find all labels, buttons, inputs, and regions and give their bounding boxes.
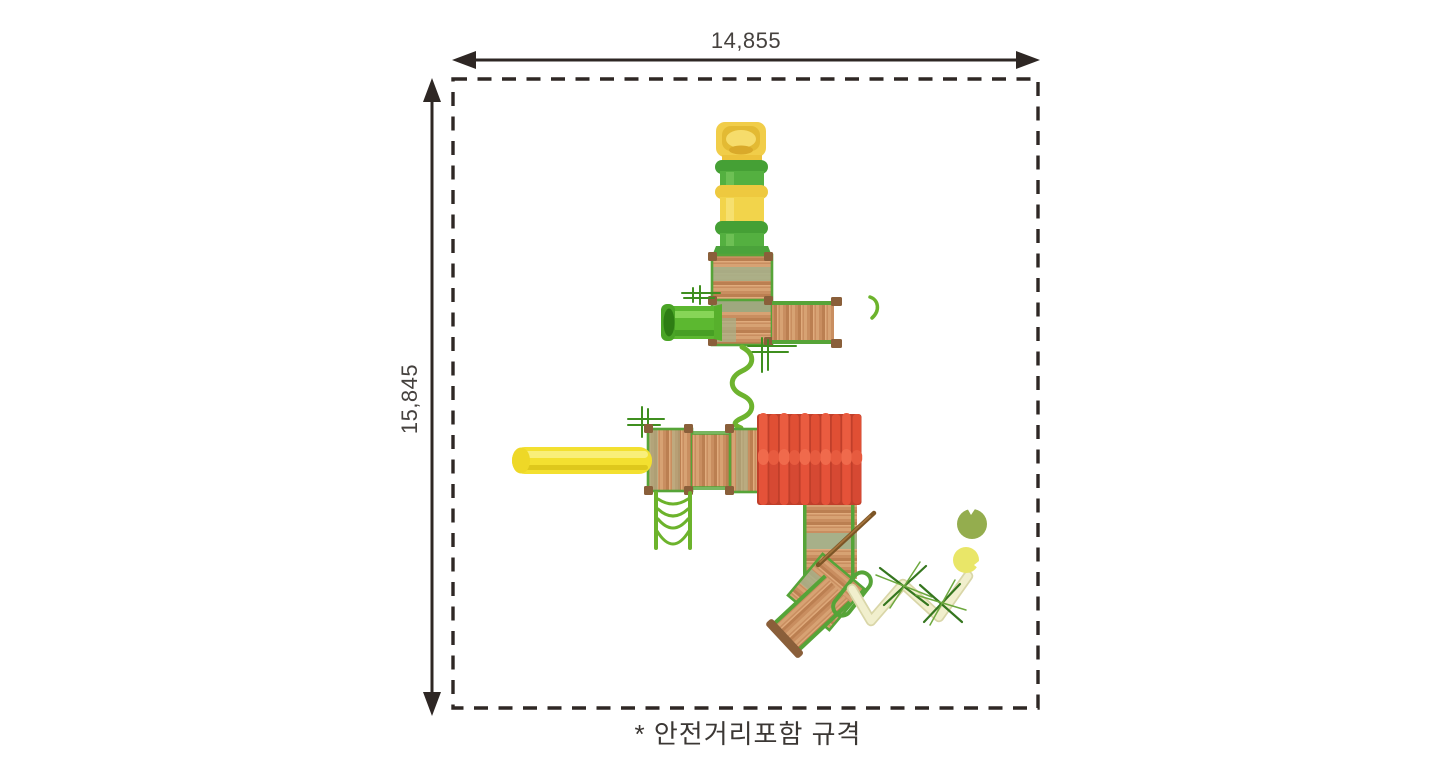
lower-platform-row — [644, 424, 761, 495]
snake-pole — [732, 347, 752, 428]
green-crawl-tube — [661, 304, 722, 341]
height-dimension-arrow — [423, 78, 441, 716]
upper-bridge — [772, 297, 877, 348]
yellow-tube-slide — [512, 447, 652, 474]
width-dimension-arrow — [452, 51, 1040, 69]
arc-climber — [656, 493, 690, 548]
red-roof — [757, 413, 862, 505]
green-shrub — [957, 506, 987, 539]
tube-slide-top-view — [712, 122, 772, 256]
drawing-canvas: 14,855 15,845 * 안전거리포함 규격 — [0, 0, 1442, 778]
playground-plan-illustration — [0, 0, 1442, 778]
yellow-shrub — [953, 547, 983, 573]
